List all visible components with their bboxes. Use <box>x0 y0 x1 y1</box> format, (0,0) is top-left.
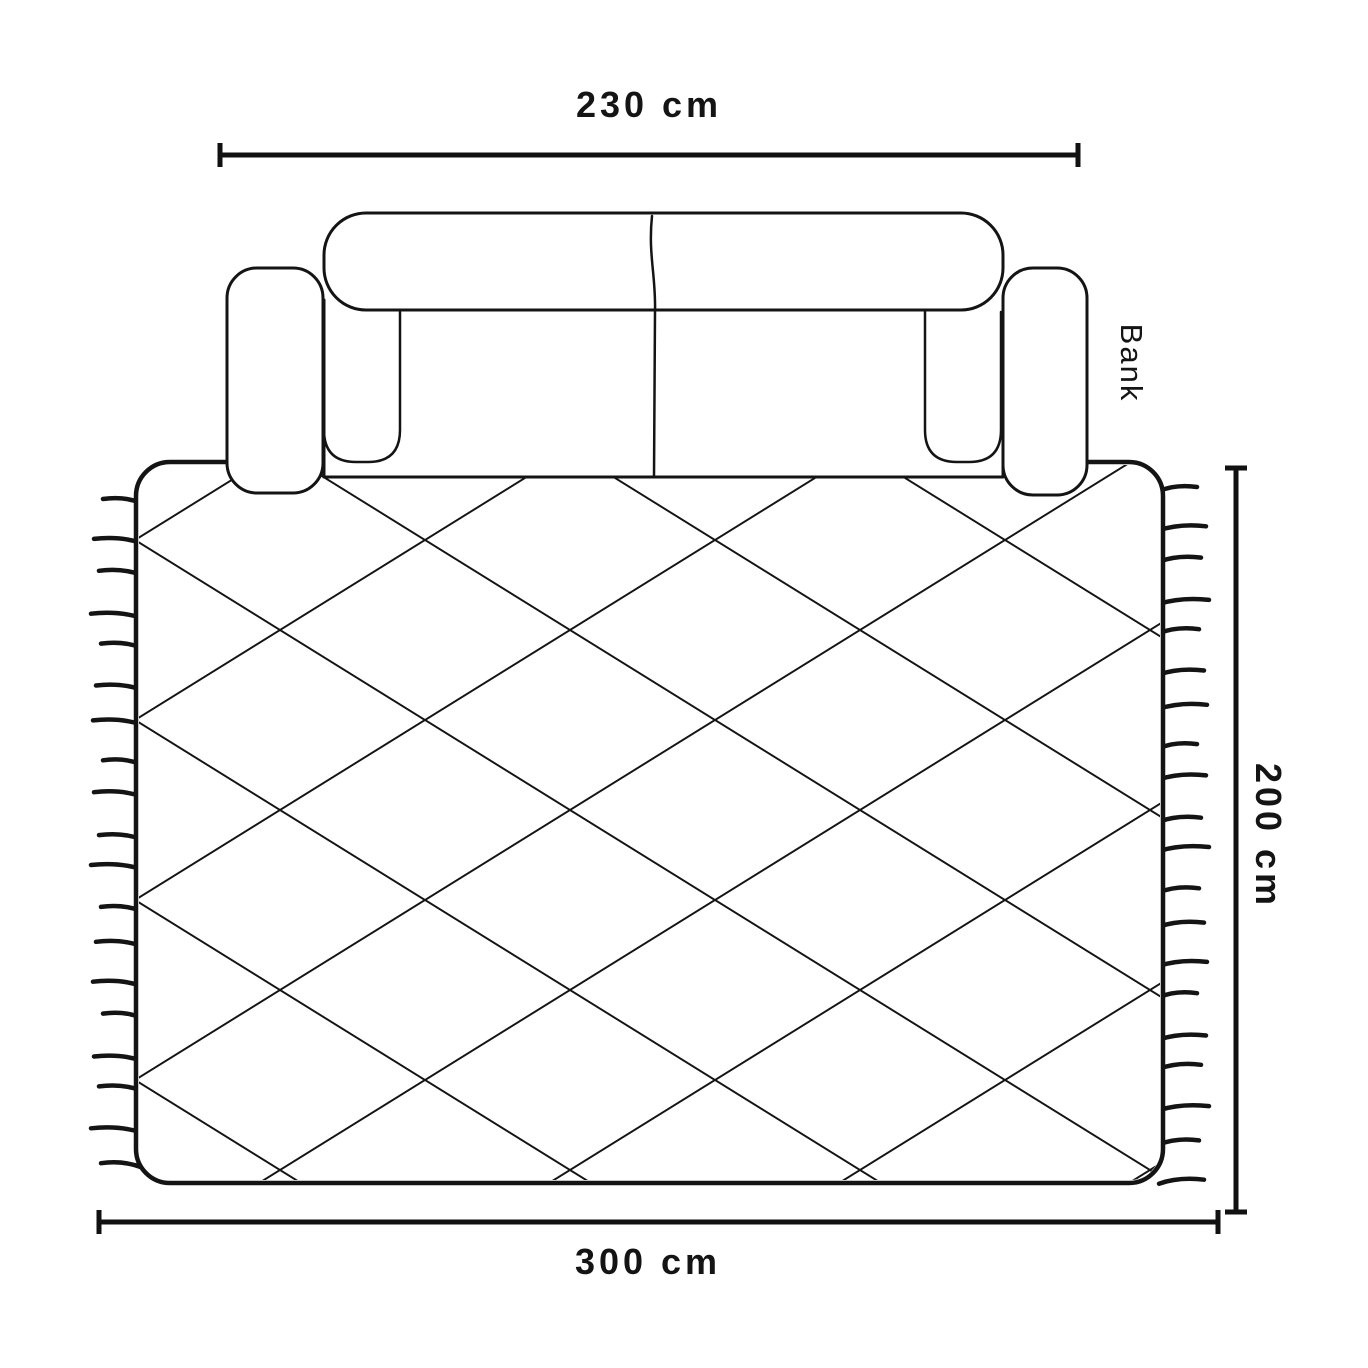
sofa-backrest <box>324 213 1003 310</box>
fringe-strand <box>91 1127 141 1132</box>
sofa-armrest-left <box>227 268 323 493</box>
fringe-strand <box>1159 599 1209 604</box>
fringe-strand <box>1159 817 1201 822</box>
sofa <box>227 213 1087 495</box>
rug-size-diagram: 230 cm 300 cm 200 cm Bank <box>0 0 1368 1368</box>
fringe-strand <box>91 613 141 618</box>
fringe-strand <box>101 1162 141 1167</box>
fringe-strand <box>1159 846 1209 851</box>
label-rug-width: 300 cm <box>575 1241 721 1282</box>
fringe-strand <box>1159 961 1207 966</box>
fringe-strand <box>1159 704 1207 709</box>
size-diagram-svg: 230 cm 300 cm 200 cm Bank <box>0 0 1368 1368</box>
rug-fringes-left <box>91 498 141 1167</box>
dim-line-rug-width <box>99 1210 1218 1234</box>
dim-line-sofa-width <box>220 143 1078 167</box>
fringe-strand <box>1159 1179 1204 1184</box>
label-sofa-width: 230 cm <box>576 84 722 125</box>
fringe-strand <box>1159 1035 1206 1040</box>
fringe-strand <box>1159 775 1206 780</box>
fringe-strand <box>91 864 141 869</box>
fringe-strand <box>1159 670 1204 675</box>
fringe-strand <box>1159 922 1204 927</box>
fringe-strand <box>1159 525 1206 530</box>
rug <box>91 462 1209 1184</box>
rug-diamond-pattern <box>136 462 1163 1183</box>
rug-fringes-right <box>1159 486 1209 1184</box>
sofa-armrest-right <box>1003 268 1087 495</box>
label-sofa: Bank <box>1114 324 1149 403</box>
dim-line-rug-height <box>1225 468 1247 1212</box>
fringe-strand <box>1159 1105 1209 1110</box>
label-rug-height: 200 cm <box>1248 763 1289 909</box>
fringe-strand <box>1159 557 1201 562</box>
fringe-strand <box>1159 1064 1201 1069</box>
sofa-body <box>324 300 1003 477</box>
